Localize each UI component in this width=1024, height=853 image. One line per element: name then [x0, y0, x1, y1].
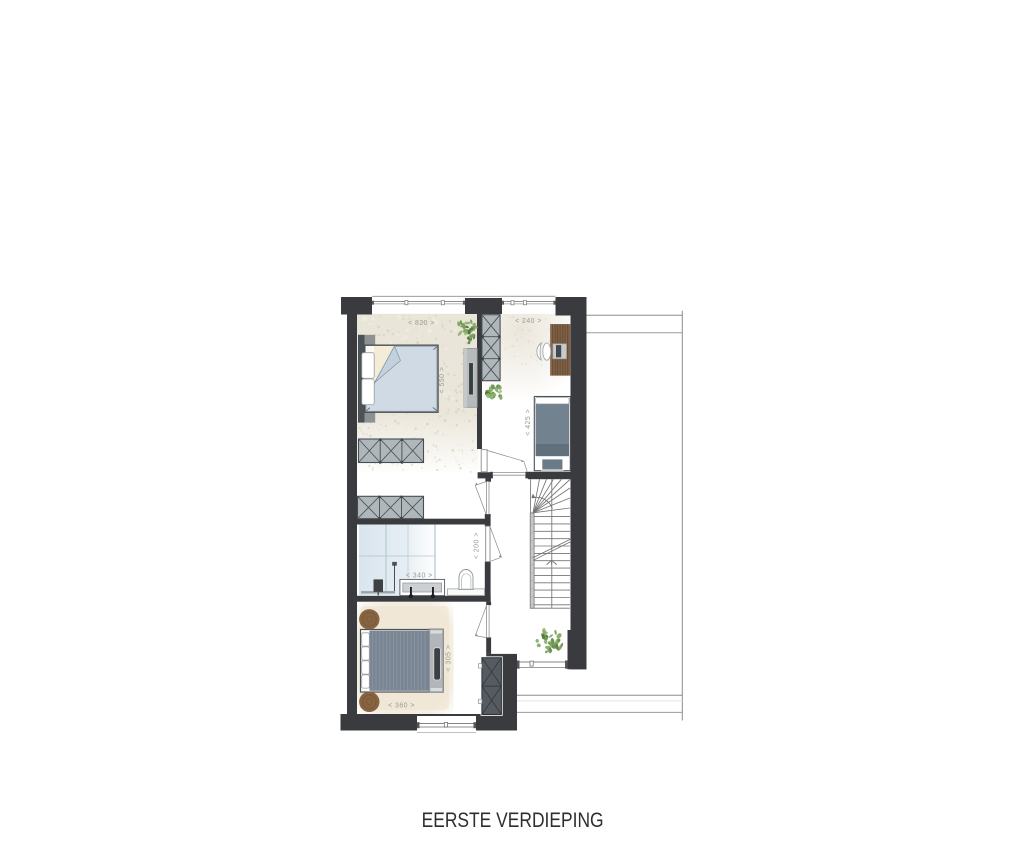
- svg-text:< 550 >: < 550 >: [439, 367, 446, 394]
- svg-text:< 200 >: < 200 >: [473, 532, 480, 559]
- svg-text:< 360 >: < 360 >: [388, 703, 415, 710]
- svg-text:< 305 >: < 305 >: [446, 645, 453, 672]
- svg-text:< 240 >: < 240 >: [515, 318, 542, 325]
- svg-text:< 425 >: < 425 >: [525, 409, 532, 436]
- svg-text:< 340 >: < 340 >: [406, 573, 433, 580]
- svg-text:< 820 >: < 820 >: [408, 320, 435, 327]
- svg-text:EERSTE VERDIEPING: EERSTE VERDIEPING: [422, 808, 604, 832]
